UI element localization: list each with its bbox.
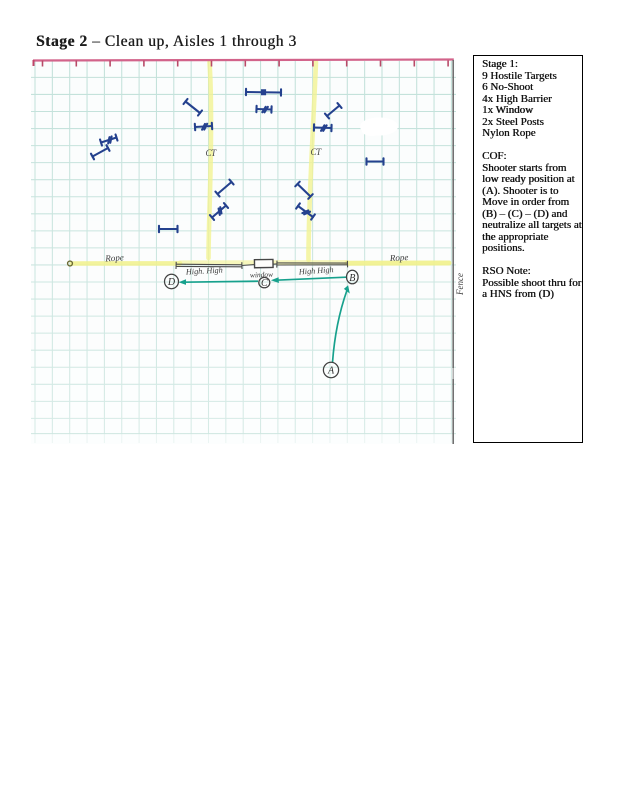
svg-text:A: A [327,366,335,377]
svg-text:Rope: Rope [104,252,124,263]
svg-text:Rope: Rope [389,252,409,263]
svg-text:Fence: Fence [455,273,465,296]
svg-text:CT: CT [311,147,323,157]
svg-text:B: B [349,273,355,284]
svg-text:CT: CT [206,148,218,158]
svg-text:D: D [167,277,176,288]
svg-text:C: C [261,278,268,289]
